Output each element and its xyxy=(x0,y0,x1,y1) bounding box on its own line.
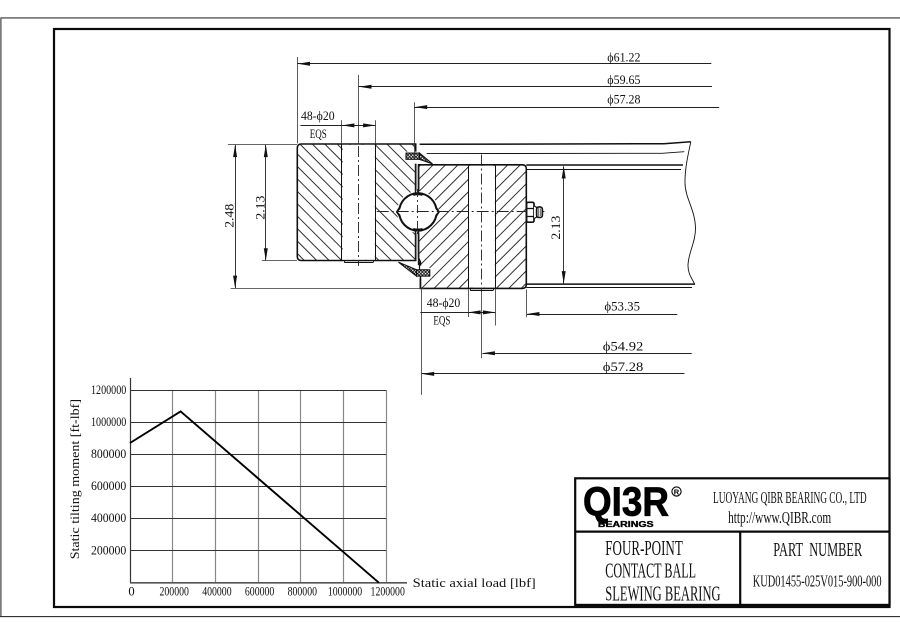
svg-text:200000: 200000 xyxy=(91,543,126,557)
svg-text:Static tilting moment [ft-lbf]: Static tilting moment [ft-lbf] xyxy=(67,399,82,559)
svg-text:1200000: 1200000 xyxy=(371,585,405,599)
svg-text:2.13: 2.13 xyxy=(548,216,563,240)
svg-text:2.48: 2.48 xyxy=(221,204,236,228)
svg-text:EQS: EQS xyxy=(310,127,327,141)
svg-text:http://www.QIBR.com: http://www.QIBR.com xyxy=(728,508,831,527)
svg-text:ϕ57.28: ϕ57.28 xyxy=(607,92,640,107)
svg-text:600000: 600000 xyxy=(245,585,274,599)
svg-text:48-ϕ20: 48-ϕ20 xyxy=(427,295,461,310)
svg-text:Static axial load [lbf]: Static axial load [lbf] xyxy=(413,575,536,590)
svg-text:800000: 800000 xyxy=(91,447,126,461)
svg-text:200000: 200000 xyxy=(160,585,189,599)
svg-text:FOUR-POINT: FOUR-POINT xyxy=(605,536,683,560)
svg-text:1200000: 1200000 xyxy=(91,383,126,397)
svg-text:R: R xyxy=(674,488,680,497)
svg-text:ϕ59.65: ϕ59.65 xyxy=(607,72,640,87)
svg-text:0: 0 xyxy=(128,585,134,599)
svg-text:ϕ53.35: ϕ53.35 xyxy=(604,299,640,314)
svg-text:CONTACT BALL: CONTACT BALL xyxy=(605,559,696,583)
svg-text:SLEWING BEARING: SLEWING BEARING xyxy=(605,581,720,605)
svg-text:600000: 600000 xyxy=(91,479,126,493)
svg-text:800000: 800000 xyxy=(288,585,317,599)
svg-text:ϕ57.28: ϕ57.28 xyxy=(603,359,644,374)
svg-text:ϕ61.22: ϕ61.22 xyxy=(607,50,640,65)
svg-text:QI3R: QI3R xyxy=(583,479,669,525)
svg-text:2.13: 2.13 xyxy=(253,196,268,220)
svg-text:EQS: EQS xyxy=(433,314,450,328)
svg-text:1000000: 1000000 xyxy=(328,585,362,599)
svg-text:400000: 400000 xyxy=(91,511,126,525)
svg-text:BEARINGS: BEARINGS xyxy=(598,520,655,529)
svg-text:PART NUMBER: PART NUMBER xyxy=(773,540,862,561)
svg-text:400000: 400000 xyxy=(202,585,231,599)
svg-text:48-ϕ20: 48-ϕ20 xyxy=(301,108,335,123)
svg-text:LUOYANG QIBR BEARING CO., LTD: LUOYANG QIBR BEARING CO., LTD xyxy=(713,488,867,507)
svg-text:ϕ54.92: ϕ54.92 xyxy=(603,338,644,353)
svg-text:KUD01455-025V015-900-000: KUD01455-025V015-900-000 xyxy=(753,572,882,591)
svg-text:1000000: 1000000 xyxy=(91,415,126,429)
